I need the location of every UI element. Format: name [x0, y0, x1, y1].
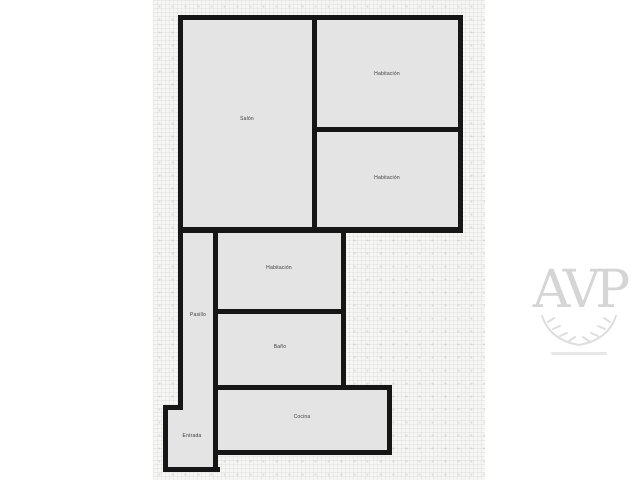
wall [163, 467, 220, 472]
room-label-pasillo: Pasillo [190, 312, 206, 318]
laurel-wreath-icon [536, 312, 622, 350]
wall [163, 405, 168, 472]
wall [178, 15, 183, 233]
wall [218, 309, 341, 314]
watermark: AVP [519, 264, 639, 364]
room-label-habitacion-bottom: Habitación [374, 175, 400, 181]
wall [387, 385, 392, 455]
watermark-text: AVP [519, 264, 639, 316]
room-label-entrada: Entrada [183, 433, 202, 439]
room-label-habitacion-middle: Habitación [266, 265, 292, 271]
wall [178, 227, 463, 233]
floor-plan-image: AVP Salón Habitación [0, 0, 640, 480]
room-label-habitacion-top: Habitación [374, 71, 400, 77]
room-label-salon: Salón [240, 116, 254, 122]
wall [213, 385, 392, 390]
wall [341, 233, 346, 390]
room-label-bano: Baño [274, 344, 286, 350]
room-cocina [218, 390, 387, 450]
room-label-cocina: Cocina [294, 414, 311, 420]
wall [178, 233, 183, 410]
wall [317, 127, 458, 132]
wall [213, 233, 218, 472]
wall [312, 20, 317, 227]
watermark-subtext [551, 352, 607, 355]
wall [218, 450, 392, 455]
wall [458, 15, 463, 233]
room-habitacion-middle [218, 233, 341, 309]
room-salon [183, 20, 312, 227]
wall [178, 15, 463, 20]
